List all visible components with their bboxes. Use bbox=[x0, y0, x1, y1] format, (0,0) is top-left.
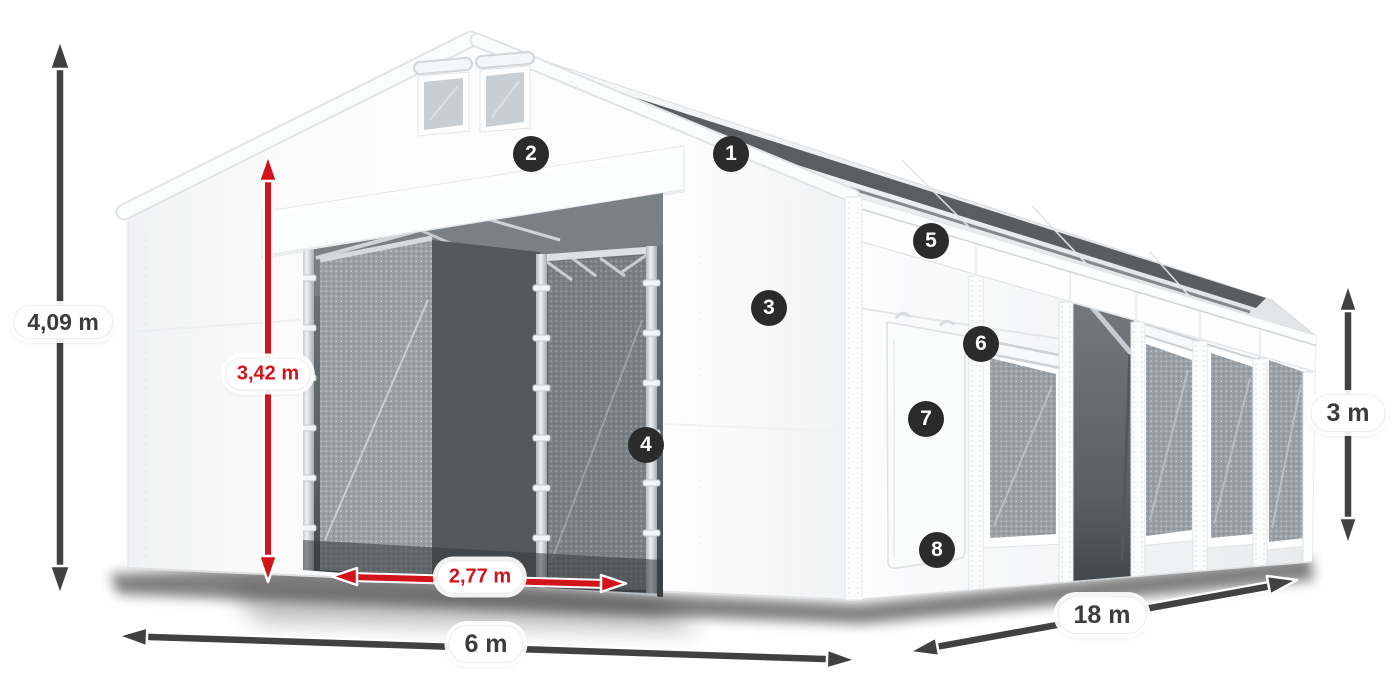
part-marker-5[interactable]: 5 bbox=[913, 223, 949, 259]
dimension-label-side-height: 3 m bbox=[1310, 394, 1385, 432]
dimension-label-total-height: 4,09 m bbox=[13, 305, 113, 339]
dimension-label-tent-width: 6 m bbox=[448, 625, 523, 663]
dimension-label-tent-length: 18 m bbox=[1058, 596, 1147, 634]
part-marker-2[interactable]: 2 bbox=[513, 136, 549, 172]
tent-dimension-diagram: 1 2 3 4 5 6 7 8 4,09 m 3,42 m 2,77 m 6 m… bbox=[0, 0, 1400, 700]
dimension-label-entrance-height: 3,42 m bbox=[225, 358, 311, 391]
side-window-4 bbox=[1264, 348, 1308, 550]
side-window-1 bbox=[982, 348, 1064, 548]
part-marker-1[interactable]: 1 bbox=[713, 136, 749, 172]
dimension-label-entrance-width: 2,77 m bbox=[437, 561, 523, 594]
part-marker-3[interactable]: 3 bbox=[751, 290, 787, 326]
side-window-2 bbox=[1140, 330, 1198, 546]
side-door-panel bbox=[887, 313, 965, 568]
part-marker-8[interactable]: 8 bbox=[919, 532, 955, 568]
part-marker-4[interactable]: 4 bbox=[628, 427, 664, 463]
front-entrance-opening bbox=[299, 193, 663, 598]
part-marker-6[interactable]: 6 bbox=[963, 326, 999, 362]
side-window-3 bbox=[1206, 340, 1258, 548]
part-marker-7[interactable]: 7 bbox=[908, 401, 944, 437]
tent-illustration bbox=[0, 0, 1400, 700]
tent-front-face bbox=[124, 38, 862, 600]
side-doorway-opening bbox=[1070, 286, 1134, 584]
gable-vent-window-2 bbox=[480, 58, 530, 132]
front-corner-pole bbox=[845, 197, 862, 600]
